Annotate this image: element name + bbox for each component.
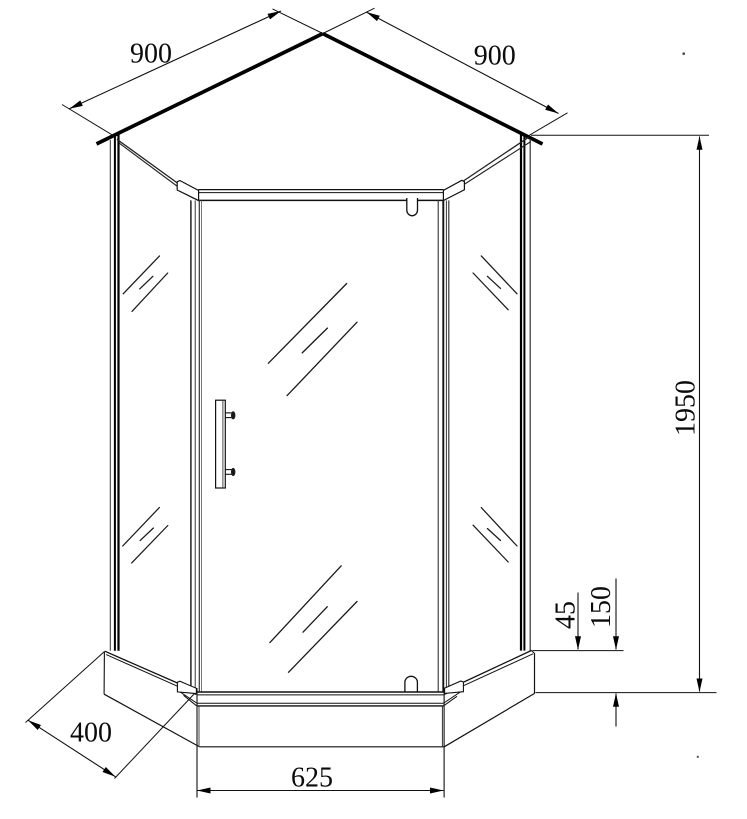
svg-text:45: 45 bbox=[551, 601, 582, 629]
svg-text:900: 900 bbox=[130, 39, 172, 70]
svg-text:625: 625 bbox=[291, 763, 333, 794]
svg-text:150: 150 bbox=[586, 586, 617, 628]
svg-text:900: 900 bbox=[474, 41, 516, 72]
svg-text:1950: 1950 bbox=[671, 380, 702, 436]
svg-text:400: 400 bbox=[70, 718, 112, 749]
